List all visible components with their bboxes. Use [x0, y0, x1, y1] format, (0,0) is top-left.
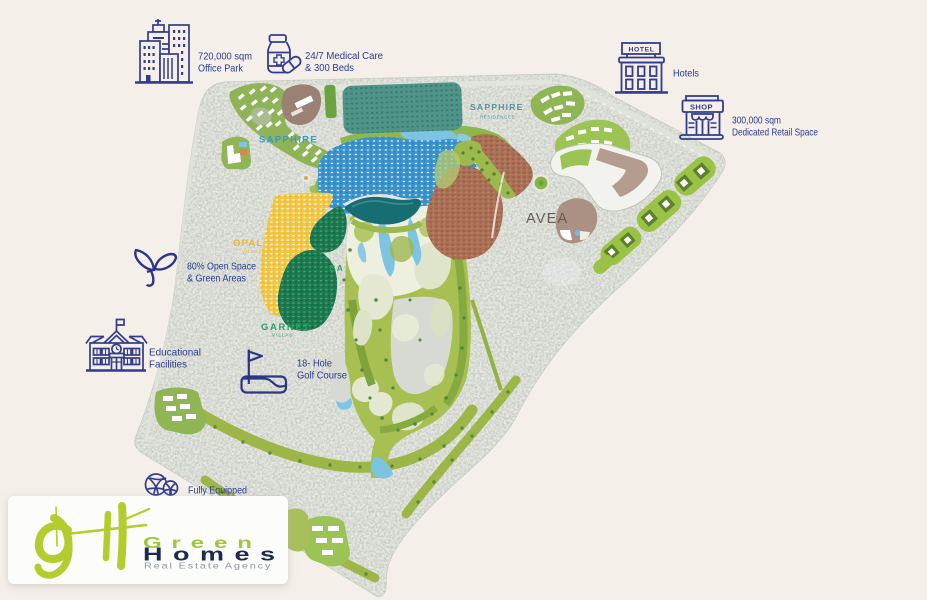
svg-text:24/7 Medical Care: 24/7 Medical Care	[305, 50, 383, 62]
svg-text:GARNET: GARNET	[261, 322, 311, 333]
svg-text:Real Estate Agency: Real Estate Agency	[144, 562, 272, 571]
svg-text:Fully Equipped: Fully Equipped	[188, 485, 247, 497]
svg-text:SAPPHIRE: SAPPHIRE	[259, 135, 318, 146]
svg-text:720,000 sqm: 720,000 sqm	[198, 51, 252, 63]
svg-text:& Green Areas: & Green Areas	[187, 273, 246, 285]
svg-text:Hotels: Hotels	[673, 68, 699, 80]
svg-text:18- Hole: 18- Hole	[297, 358, 332, 370]
svg-text:RESIDENCES: RESIDENCES	[480, 115, 515, 120]
svg-text:Golf Course: Golf Course	[297, 370, 347, 382]
svg-text:80% Open Space: 80% Open Space	[187, 261, 256, 273]
svg-text:OPAL: OPAL	[233, 238, 263, 249]
svg-text:SHOP: SHOP	[690, 103, 713, 112]
svg-text:AVEA: AVEA	[526, 211, 568, 227]
svg-text:& 300 Beds: & 300 Beds	[305, 62, 354, 74]
svg-text:Educational: Educational	[149, 347, 201, 359]
svg-text:GA: GA	[329, 263, 344, 273]
svg-text:HOTEL: HOTEL	[629, 47, 655, 54]
svg-text:300,000 sqm: 300,000 sqm	[732, 115, 781, 127]
svg-text:SAPPHIRE: SAPPHIRE	[470, 102, 524, 112]
svg-text:VILLAS: VILLAS	[242, 249, 262, 254]
svg-text:Facilities: Facilities	[149, 359, 187, 371]
svg-text:Dedicated Retail Space: Dedicated Retail Space	[732, 127, 818, 139]
svg-text:VILLAS: VILLAS	[272, 333, 294, 338]
svg-text:Office Park: Office Park	[198, 63, 244, 75]
